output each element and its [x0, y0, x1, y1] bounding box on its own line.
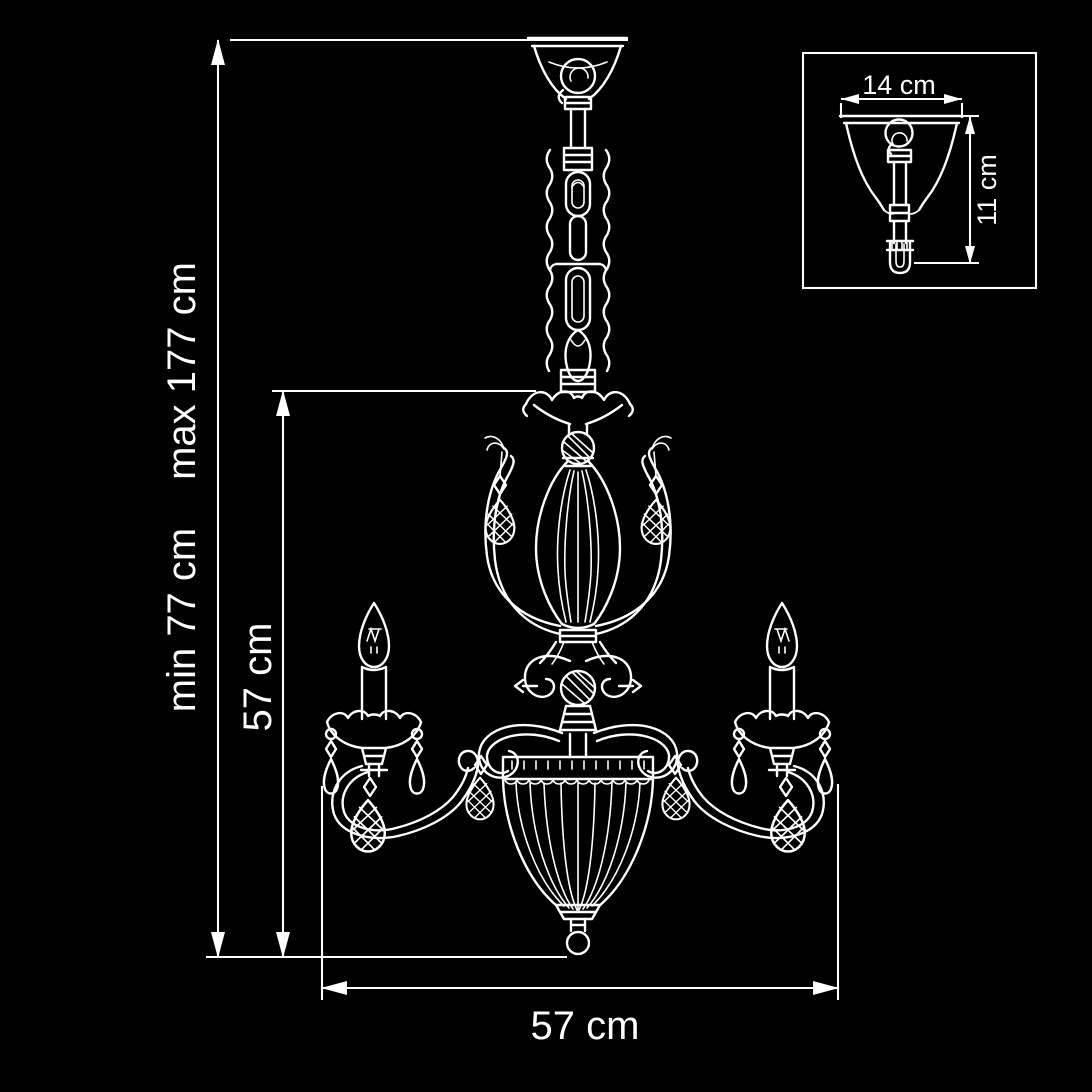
chandelier-drawing [324, 38, 832, 954]
label-width: 57 cm [531, 1004, 640, 1048]
inset-label-width: 14 cm [862, 70, 936, 100]
label-height-min: min 77 cm [160, 528, 204, 713]
vase-and-lyre-arms [485, 436, 671, 642]
chandelier-dimension-diagram: max 177 cm min 77 cm 57 cm 57 cm [0, 0, 1092, 1092]
inset-canopy-drawing [840, 116, 963, 273]
finial-ball [567, 932, 589, 954]
inset-label-height: 11 cm [972, 154, 1002, 226]
label-upper-drop: 57 cm [236, 623, 280, 732]
candle-arm-left [324, 603, 478, 852]
hanging-hook-icon [561, 59, 595, 93]
bowl [503, 734, 653, 954]
ceiling-canopy [528, 38, 627, 148]
crown-and-sphere [523, 391, 633, 464]
diagram-canvas: max 177 cm min 77 cm 57 cm 57 cm [0, 0, 1092, 1092]
dimension-labels: max 177 cm min 77 cm 57 cm 57 cm [160, 262, 639, 1048]
inset-detail: 14 cm 11 cm [803, 53, 1036, 288]
chain-and-sleeve [547, 148, 610, 392]
candle-arm-right [678, 603, 832, 852]
label-height-max: max 177 cm [160, 262, 204, 480]
inset-dimension-lines [841, 94, 979, 264]
scroll-ornament [515, 642, 641, 730]
dimension-lines [206, 39, 839, 1000]
